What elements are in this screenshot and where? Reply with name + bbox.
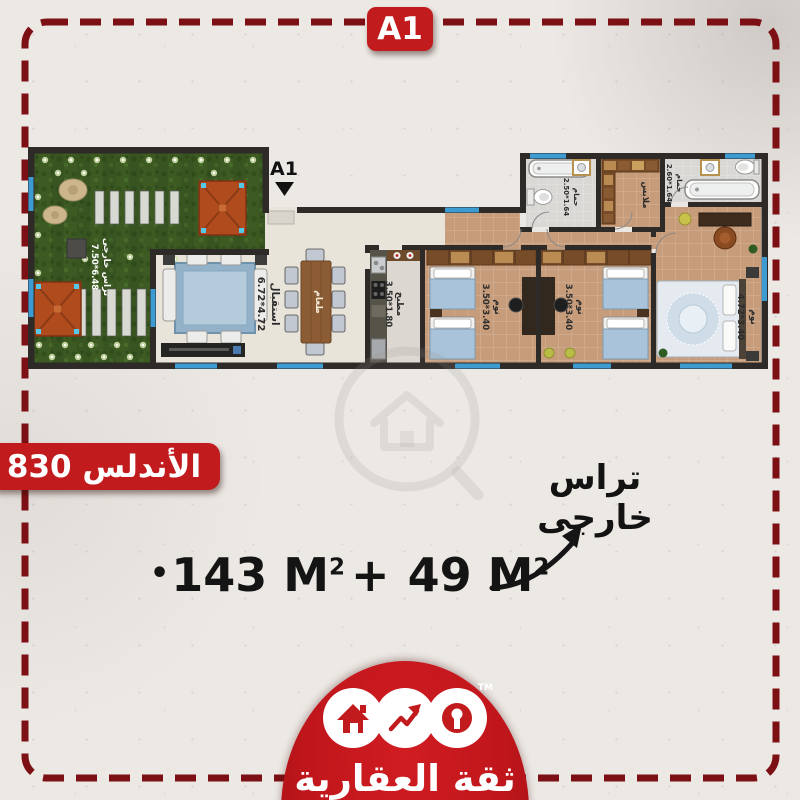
room-dims-terrace: 7.50*6.48 [89, 244, 99, 290]
room-dims-bathroom2: 2.60*1.64 [665, 164, 673, 202]
outdoor-area-unit: M [488, 548, 534, 602]
room-dims-master: 4.72*3.40 [735, 294, 745, 340]
entrance-step [268, 211, 294, 224]
floor-plan: A1 تراس خارجى 7.50*6.48 استقبال 6.72*4.7… [25, 139, 770, 374]
room-label-master: نوم [748, 309, 758, 325]
plant-icon [749, 245, 758, 254]
room-dims-reception: 6.72*4.72 [255, 277, 266, 332]
room-label-dressing: ملابس [640, 182, 650, 209]
flyer-page: A1 [0, 0, 800, 800]
room-label-dining: طعام [313, 290, 323, 314]
indoor-area-sup: 2 [329, 555, 345, 581]
outdoor-area-value: 49 [408, 548, 472, 602]
logo-icon-row [281, 688, 529, 748]
room-label-bedroom2: نوم [575, 299, 585, 315]
area-line: •143 M2+49 M2 [150, 548, 500, 602]
room-label-reception: استقبال [269, 282, 281, 325]
project-badge: الأندلس 830 [0, 443, 220, 490]
logo-arabic-name: ثقة العقارية [281, 757, 529, 800]
room-label-kitchen: مطبخ [394, 292, 404, 317]
plant-icon [679, 213, 691, 225]
desk [522, 277, 536, 335]
room-dims-kitchen: 3.50*1.80 [383, 281, 393, 327]
double-bed [657, 279, 746, 359]
area-bullet: • [150, 556, 169, 591]
indoor-area-value: 143 [171, 548, 267, 602]
plant-icon [544, 348, 554, 358]
desk-chair [509, 298, 523, 312]
room-dims-bedroom2: 3.50*3.40 [563, 284, 573, 330]
outdoor-area-sup: 2 [533, 555, 549, 581]
entrance-marker: A1 [270, 158, 298, 196]
indoor-area-unit: M [283, 548, 329, 602]
key-icon [427, 688, 487, 748]
entrance-arrow-icon [275, 182, 294, 196]
toilet [527, 189, 534, 205]
area-plus: + [351, 548, 390, 602]
garden-utility-box [67, 239, 86, 258]
room-label-bathroom1: حمام [572, 188, 581, 207]
room-dims-bedroom1: 3.50*3.40 [480, 284, 490, 330]
growth-arrow-icon [375, 688, 435, 748]
room-label-bedroom1: نوم [492, 299, 502, 315]
unit-badge: A1 [367, 7, 433, 51]
desk [541, 277, 555, 335]
entrance-label: A1 [270, 158, 298, 180]
room-label-terrace: تراس خارجى [101, 238, 111, 296]
house-icon [323, 688, 383, 748]
room-dims-bathroom1: 2.50*1.64 [562, 178, 570, 216]
dressing-table [699, 213, 751, 226]
plant-icon [565, 348, 575, 358]
plant-icon [659, 349, 668, 358]
trademark-label: TM [478, 683, 493, 693]
room-label-bathroom2: حمام [675, 174, 684, 193]
